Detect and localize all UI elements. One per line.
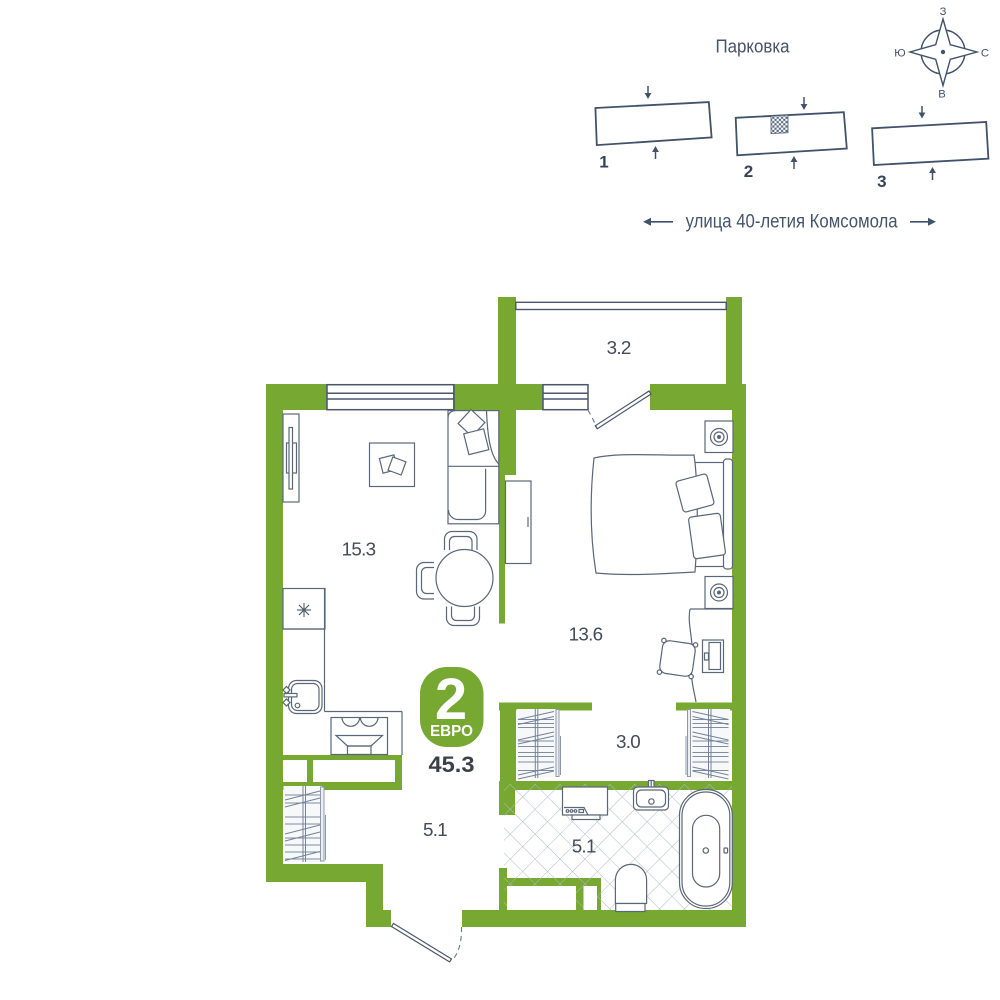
svg-text:С: С	[981, 48, 989, 60]
svg-text:3.0: 3.0	[616, 731, 640, 752]
svg-text:5.1: 5.1	[423, 819, 447, 840]
svg-text:15.3: 15.3	[342, 539, 376, 560]
svg-text:5.1: 5.1	[572, 836, 596, 857]
svg-text:Ю: Ю	[894, 48, 905, 60]
svg-text:2: 2	[744, 162, 753, 181]
svg-text:улица 40-летия Комсомола: улица 40-летия Комсомола	[686, 212, 898, 233]
svg-text:1: 1	[599, 153, 608, 172]
svg-text:Парковка: Парковка	[716, 36, 791, 57]
svg-text:З: З	[940, 6, 947, 18]
svg-text:3: 3	[877, 172, 886, 191]
svg-text:В: В	[938, 89, 946, 101]
svg-text:13.6: 13.6	[569, 624, 603, 645]
svg-text:ЕВРО: ЕВРО	[430, 723, 473, 740]
svg-text:45.3: 45.3	[429, 752, 475, 777]
svg-text:3.2: 3.2	[607, 337, 631, 358]
